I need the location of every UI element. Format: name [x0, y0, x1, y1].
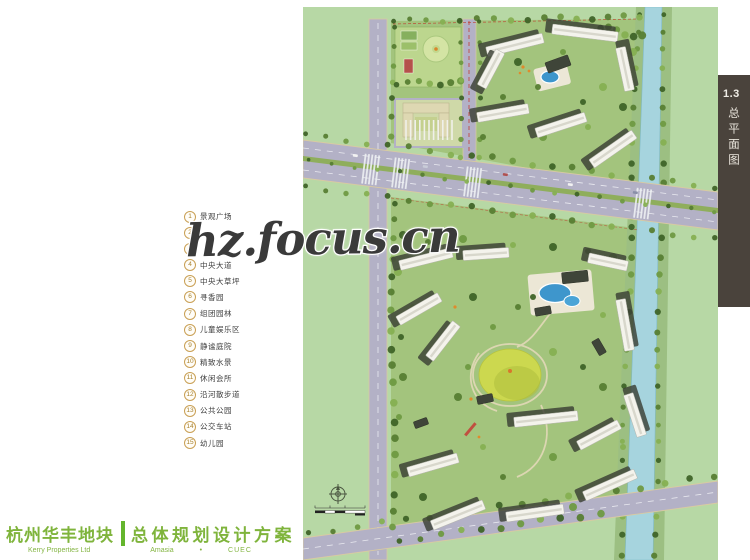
legend-item-label: 公交车站: [200, 421, 232, 432]
legend-item-number: 2: [184, 227, 196, 239]
legend-item: 3: [184, 243, 240, 254]
legend-item-number: 7: [184, 308, 196, 320]
legend-item-label: 公共公园: [200, 405, 232, 416]
developer-name: Kerry Properties Ltd: [28, 547, 90, 554]
legend-item: 7组团园林: [184, 308, 240, 319]
legend-item: 11休闲会所: [184, 373, 240, 384]
legend-item: 4中央大道: [184, 260, 240, 271]
legend-item: 1景观广场: [184, 211, 240, 222]
page: 1景观广场234中央大道5中央大草坪6寻香园7组团园林8儿童娱乐区9静谧庭院10…: [0, 0, 750, 560]
legend-item: 15幼儿园: [184, 438, 240, 449]
legend-item-label: 组团园林: [200, 308, 232, 319]
section-title: 总平面图: [725, 107, 741, 169]
legend: 1景观广场234中央大道5中央大草坪6寻香园7组团园林8儿童娱乐区9静谧庭院10…: [184, 211, 240, 454]
legend-item-number: 14: [184, 421, 196, 433]
legend-item: 10精致水景: [184, 357, 240, 368]
site-plan-map: [303, 7, 718, 560]
corner-park: [395, 27, 461, 87]
title-block: 杭州华丰地块 总体规划设计方案 Kerry Properties Ltd Ama…: [6, 521, 306, 554]
partner-name-1: Amasia: [150, 547, 173, 554]
legend-item-label: 精致水景: [200, 357, 232, 368]
legend-item-label: 儿童娱乐区: [200, 324, 240, 335]
clubhouse-dark-roof: [561, 270, 588, 284]
legend-item-label: 寻香园: [200, 292, 224, 303]
legend-item-number: 4: [184, 259, 196, 271]
legend-item-number: 5: [184, 275, 196, 287]
legend-item-number: 11: [184, 372, 196, 384]
legend-item-number: 15: [184, 437, 196, 449]
title-divider-bar: [121, 521, 125, 546]
legend-item-label: 中央大道: [200, 260, 232, 271]
legend-item: 13公共公园: [184, 405, 240, 416]
legend-item-label: 休闲会所: [200, 373, 232, 384]
legend-item-label: 幼儿园: [200, 438, 224, 449]
plan-title: 总体规划设计方案: [131, 521, 295, 546]
legend-item: 9静谧庭院: [184, 341, 240, 352]
central-lawn: [479, 349, 541, 401]
legend-item-number: 12: [184, 389, 196, 401]
commercial-block: [395, 99, 463, 147]
legend-item-label: 中央大草坪: [200, 276, 240, 287]
legend-item-label: 沿河散步道: [200, 389, 240, 400]
legend-item: 6寻香园: [184, 292, 240, 303]
partner-name-2: CUEC: [228, 547, 252, 554]
legend-item-number: 6: [184, 291, 196, 303]
legend-item-number: 3: [184, 243, 196, 255]
legend-item-number: 13: [184, 405, 196, 417]
legend-item: 8儿童娱乐区: [184, 324, 240, 335]
legend-item-label: 景观广场: [200, 211, 232, 222]
legend-item-number: 8: [184, 324, 196, 336]
legend-item-label: 静谧庭院: [200, 341, 232, 352]
section-number: 1.3: [723, 88, 750, 100]
separator-dot: •: [200, 547, 202, 554]
legend-item: 2: [184, 227, 240, 238]
legend-item: 14公交车站: [184, 421, 240, 432]
legend-item: 5中央大草坪: [184, 276, 240, 287]
legend-item-number: 1: [184, 211, 196, 223]
legend-item-number: 10: [184, 356, 196, 368]
legend-item-number: 9: [184, 340, 196, 352]
section-tab: 1.3 总平面图: [718, 75, 750, 307]
legend-item: 12沿河散步道: [184, 389, 240, 400]
site-plan-svg: [303, 7, 718, 560]
red-court: [404, 59, 413, 73]
project-name: 杭州华丰地块: [6, 521, 114, 546]
